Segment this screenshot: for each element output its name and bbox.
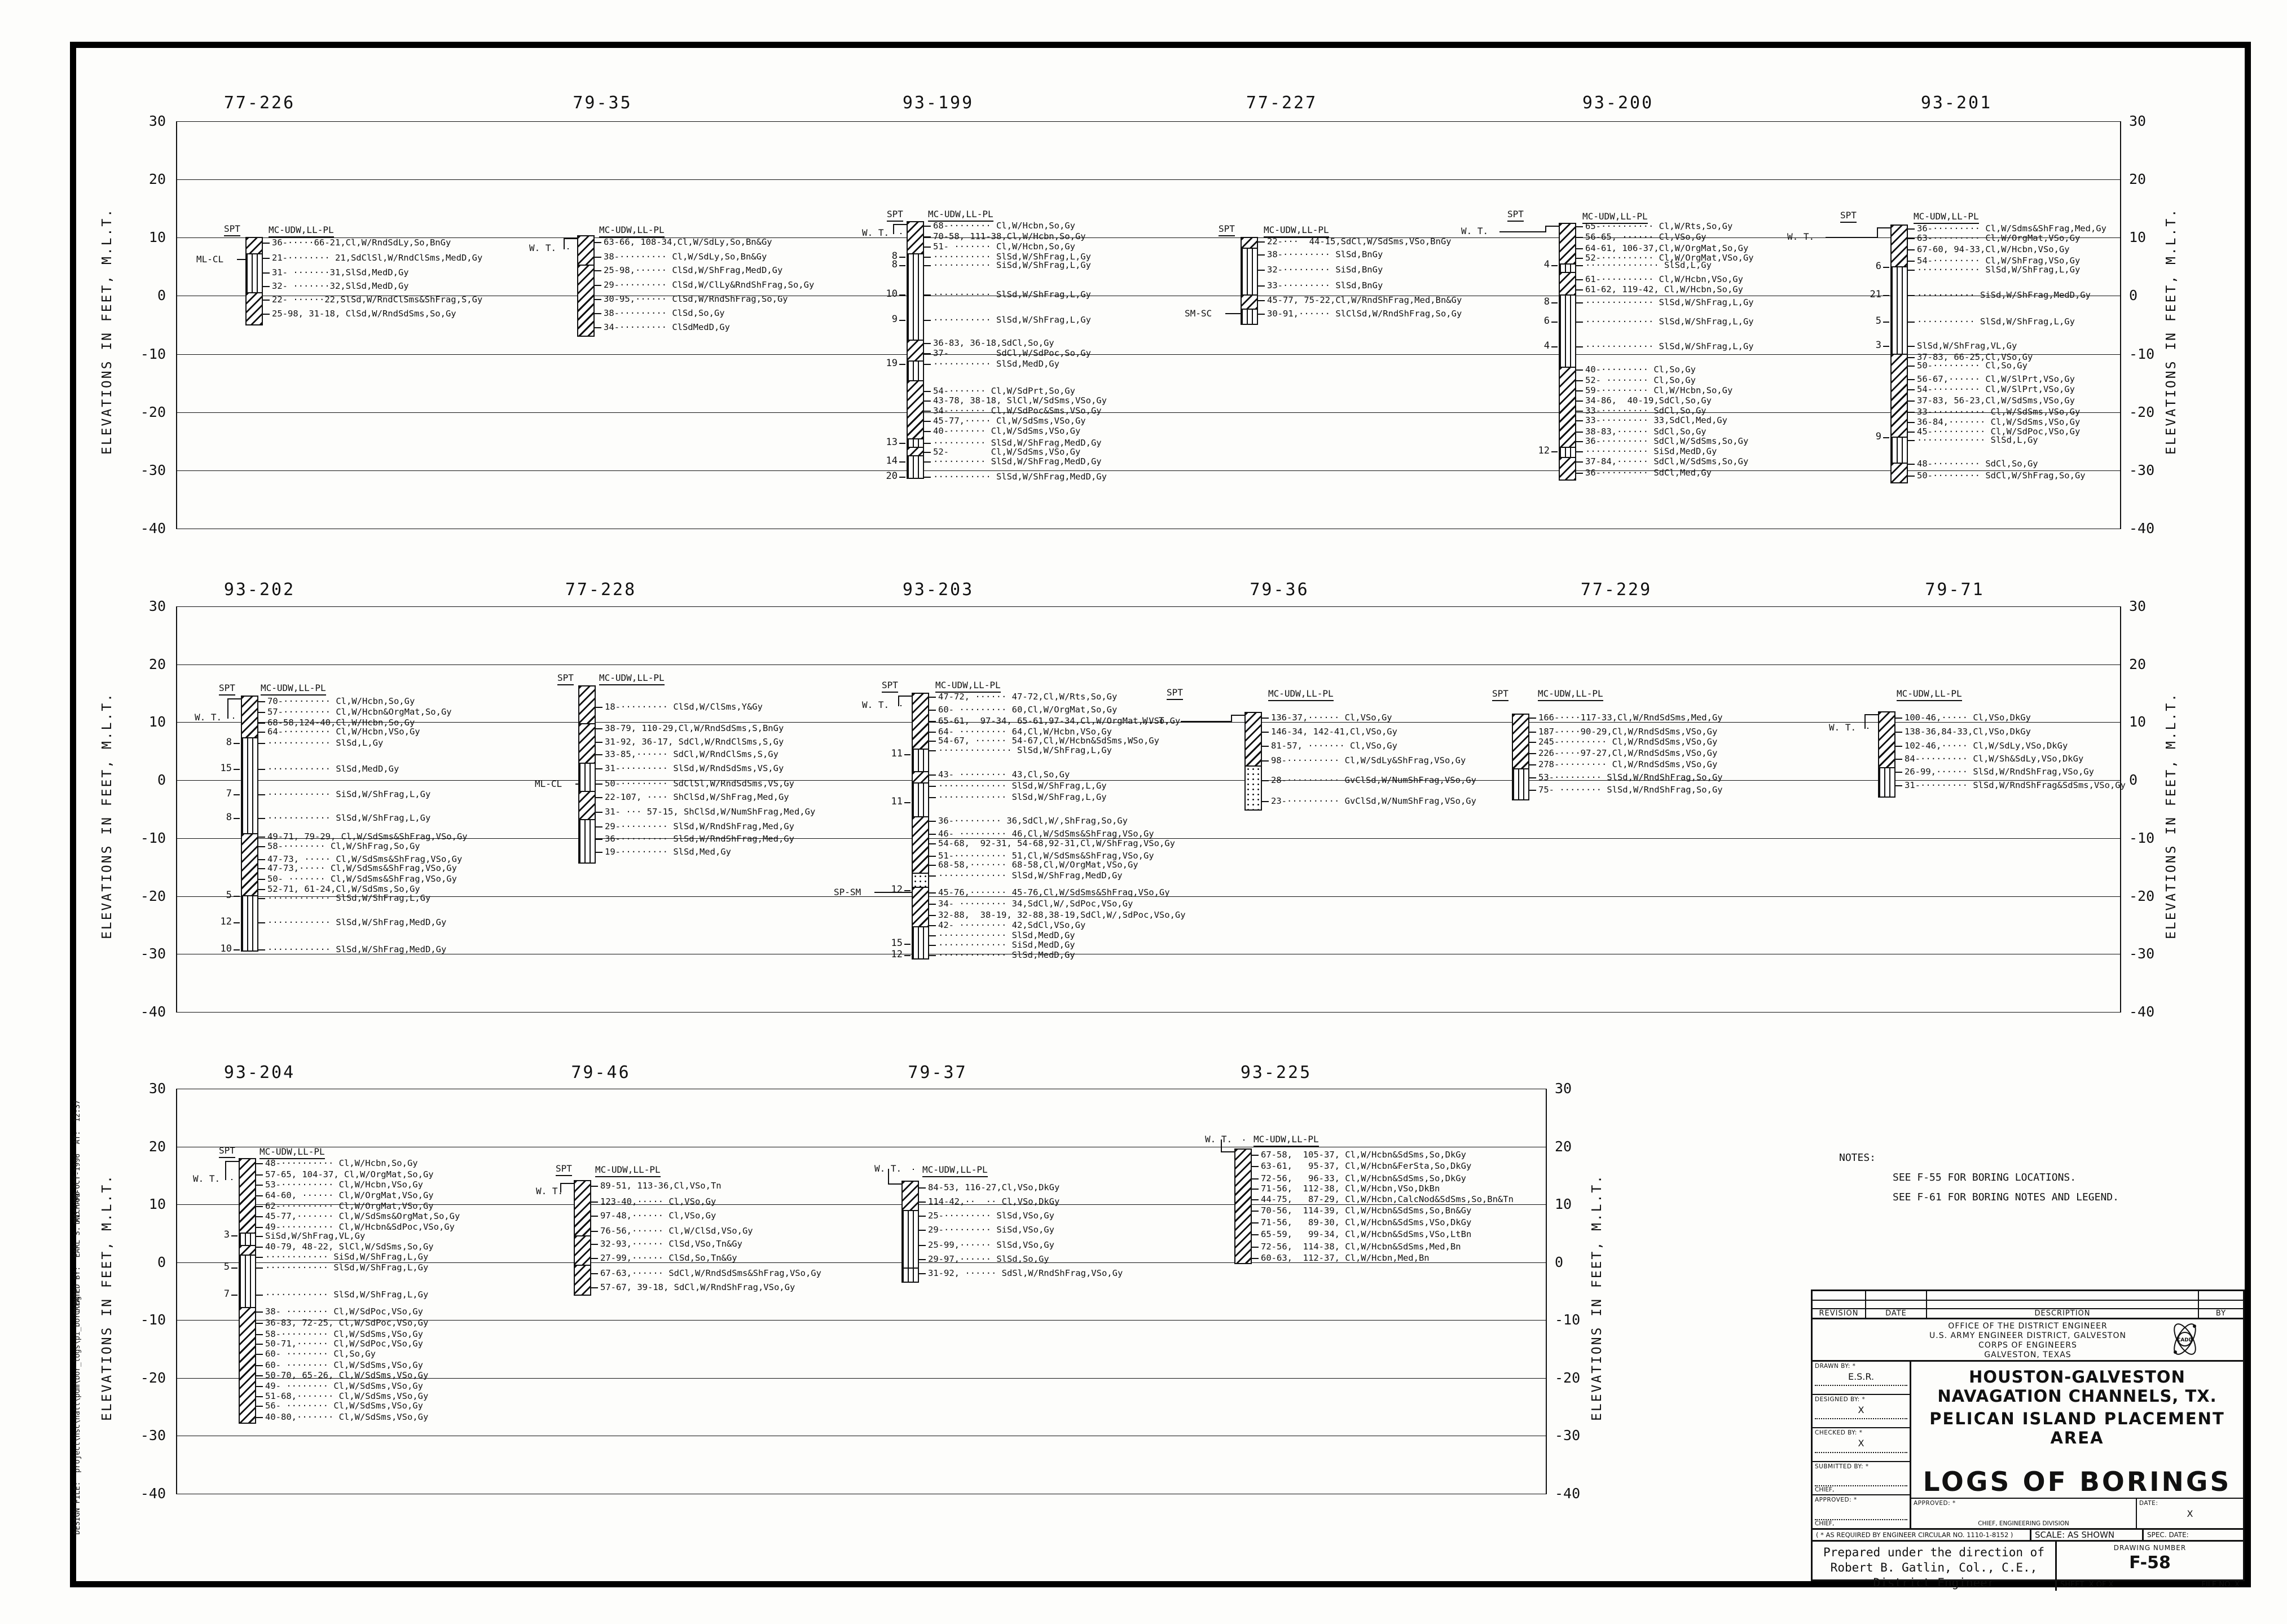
- tick-label: 30: [132, 113, 166, 129]
- strip-segment: [247, 253, 262, 292]
- leader-tick: [258, 879, 265, 880]
- leader-tick: [256, 1417, 263, 1418]
- leader-tick: [929, 821, 936, 822]
- log-entry: 67-60, 94-33,Cl,W/Hcbn,VSo,Gy: [1917, 244, 2070, 254]
- leader-tick: [256, 1267, 263, 1269]
- wt-line: [560, 1183, 561, 1192]
- strip-segment: [908, 447, 923, 455]
- boring-title: 93-201: [1894, 93, 2018, 113]
- wt-line: [231, 1179, 232, 1180]
- strip-segment: [579, 819, 595, 862]
- tick-label: 30: [132, 1080, 166, 1097]
- tick-label: 10: [132, 1196, 166, 1212]
- strip-segment: [913, 771, 928, 782]
- log-entry: 28-·········· GvClSd,W/NumShFrag,VSo,Gy: [1271, 775, 1476, 785]
- leader-tick: [256, 1386, 263, 1387]
- wt-label: W. T.: [1787, 231, 1814, 242]
- spt-tick: [904, 802, 911, 803]
- leader-tick: [1252, 1199, 1259, 1200]
- leader-tick: [258, 922, 265, 923]
- boring-title: 77-226: [197, 93, 322, 113]
- tick-label: 30: [2129, 598, 2169, 614]
- leader-tick: [1576, 248, 1583, 249]
- log-entry: 226-····97-27,Cl,W/RndSdSms,VSo,Gy: [1538, 748, 1717, 758]
- class-label: ML-CL: [535, 778, 562, 789]
- leader-tick: [1895, 772, 1902, 773]
- mc-header: MC-UDW,LL-PL: [928, 209, 993, 222]
- strip-segment: [247, 238, 262, 253]
- tick-label: -30: [132, 945, 166, 962]
- log-entry: 36-········· SlSd,W/RndShFrag,Med,Gy: [605, 834, 794, 844]
- log-entry: 64-61, 106-37,Cl,W/OrgMat,So,Gy: [1585, 243, 1748, 253]
- leader-tick: [1258, 300, 1265, 301]
- tick-label: 10: [2129, 229, 2169, 245]
- leader-tick: [1908, 432, 1915, 433]
- log-entry: 18-········· ClSd,W/ClSms,Y&Gy: [605, 702, 763, 712]
- spt-tick: [1883, 322, 1889, 323]
- log-entry: ·········· SlSd,W/ShFrag,MedD,Gy: [933, 456, 1102, 466]
- grid-line: [176, 664, 2120, 665]
- leader-tick: [595, 270, 601, 271]
- tick-label: 20: [2129, 656, 2169, 672]
- spt-tick: [904, 754, 911, 755]
- tick-label: -40: [2129, 520, 2169, 536]
- panel-edge: [176, 606, 177, 1012]
- tick-label: 0: [132, 1254, 166, 1270]
- strip-segment: [908, 438, 923, 447]
- leader-tick: [1529, 742, 1536, 743]
- log-entry: 44-75, 87-29, Cl,W/Hcbn,CalcNod&SdSms,So…: [1261, 1194, 1514, 1204]
- log-entry: 34- ········· 34,SdCl,W/,SdPoc,VSo,Gy: [938, 899, 1133, 909]
- leader-tick: [919, 1273, 926, 1274]
- log-entry: 50-········· SdClSl,W/RndSdSms,VS,Gy: [605, 778, 794, 789]
- log-entry: 38-········· SlSd,BnGy: [1267, 249, 1383, 259]
- leader-tick: [258, 898, 265, 899]
- tick-label: -40: [132, 1004, 166, 1020]
- log-entry: ············ SlSd,W/ShFrag,MedD,Gy: [267, 917, 446, 927]
- strip-segment: [1892, 266, 1907, 354]
- leader-tick: [1895, 718, 1902, 719]
- leader-tick: [1908, 389, 1915, 390]
- log-entry: 84-········· Cl,W/Sh&SdLy,VSo,DkGy: [1905, 754, 2083, 764]
- log-entry: 40-80,······· Cl,W/SdSms,VSo,Gy: [265, 1412, 428, 1422]
- spt-header: SPT: [224, 223, 240, 236]
- log-entry: 60- ········· 60,Cl,W/OrgMat,So,Gy: [938, 705, 1117, 715]
- leader-tick: [258, 794, 265, 795]
- strip-segment: [575, 1235, 590, 1265]
- tick-label: 0: [2129, 772, 2169, 788]
- log-strip: [1890, 225, 1908, 483]
- leader-tick: [258, 743, 265, 744]
- mc-header: MC-UDW,LL-PL: [1268, 688, 1334, 701]
- spt-tick: [1551, 265, 1558, 266]
- leader-tick: [263, 243, 270, 244]
- spt-tick: [234, 896, 240, 897]
- log-entry: ··········· SlSd,W/ShFrag,L,Gy: [933, 289, 1091, 300]
- log-entry: ············· SlSd,MedD,Gy: [938, 930, 1075, 940]
- leader-tick: [929, 945, 936, 946]
- log-entry: 62-·········· Cl,W/OrgMat,VSo,Gy: [265, 1201, 434, 1211]
- strip-segment: [913, 873, 928, 887]
- strip-segment: [578, 236, 593, 265]
- tick-label: 0: [2129, 287, 2169, 303]
- spt-tick: [234, 769, 240, 770]
- spt-header: SPT: [1219, 223, 1235, 236]
- wt-line: [227, 698, 228, 719]
- mc-header: MC-UDW,LL-PL: [1254, 1134, 1319, 1147]
- leader-tick: [258, 701, 265, 702]
- leader-tick: [256, 1174, 263, 1176]
- leader-tick: [591, 1231, 598, 1232]
- tick-label: -20: [132, 888, 166, 904]
- strip-segment: [913, 926, 928, 958]
- log-entry: 50-········· Cl,So,Gy: [1917, 360, 2027, 371]
- log-entry: ·············· SlSd,L,Gy: [1585, 260, 1712, 270]
- log-entry: ············ SlSd,W/ShFrag,L,Gy: [265, 1262, 428, 1273]
- log-entry: ············ SlSd,L,Gy: [267, 738, 383, 748]
- strip-segment: [908, 455, 923, 478]
- wt-line: [227, 698, 241, 699]
- strip-segment: [1560, 447, 1575, 457]
- log-entry: 67-63,······ SdCl,W/RndSdSms&ShFrag,VSo,…: [600, 1268, 821, 1278]
- panel-edge: [2120, 606, 2121, 1013]
- log-entry: 278-········· Cl,W/RndSdSms,VSo,Gy: [1538, 759, 1717, 769]
- log-entry: 98-·········· Cl,W/SdLy&ShFrag,VSo,Gy: [1271, 755, 1466, 765]
- leader-tick: [263, 300, 270, 301]
- spt-tick: [231, 1235, 238, 1236]
- log-entry: 75- ········ SlSd,W/RndShFrag,So,Gy: [1538, 785, 1723, 795]
- boring-title: 79-71: [1893, 580, 2017, 600]
- leader-tick: [595, 299, 601, 300]
- boring-title: 79-37: [876, 1063, 1000, 1082]
- log-entry: ············ SiSd,W/ShFrag,L,Gy: [267, 789, 430, 799]
- spt-tick: [234, 794, 240, 795]
- log-entry: 29-········· SlSd,W/RndShFrag,Med,Gy: [605, 821, 794, 831]
- leader-tick: [1252, 1247, 1259, 1248]
- spt-tick: [1551, 346, 1558, 347]
- log-entry: ··········· SlSd,W/ShFrag,L,Gy: [933, 315, 1091, 325]
- log-entry: 29-········· ClSd,W/ClLy&RndShFrag,So,Gy: [604, 280, 814, 290]
- log-entry: 47-73,····· Cl,W/SdSms&ShFrag,VSo,Gy: [267, 863, 457, 873]
- panel-edge: [2120, 121, 2121, 529]
- leader-tick: [595, 285, 601, 286]
- log-entry: 70-56, 114-39, Cl,W/Hcbn&SdSms,So,Bn&Gy: [1261, 1205, 1471, 1216]
- leader-tick: [1262, 801, 1269, 802]
- log-entry: 63-61, 95-37, Cl,W/Hcbn&FerSta,So,DkGy: [1261, 1161, 1471, 1171]
- strip-segment: [242, 833, 257, 895]
- log-strip: [239, 1158, 256, 1424]
- log-entry: ············· SlSd,L,Gy: [1917, 435, 2038, 445]
- leader-tick: [1908, 322, 1915, 323]
- leader-tick: [1908, 295, 1915, 296]
- log-entry: ············· SlSd,W/ShFrag,MedD,Gy: [938, 870, 1123, 881]
- tick-label: -40: [132, 520, 166, 536]
- leader-tick: [924, 265, 931, 266]
- leader-tick: [919, 1245, 926, 1246]
- strip-segment: [242, 895, 257, 950]
- tick-label: -20: [2129, 888, 2169, 904]
- spt-tick: [899, 257, 905, 258]
- spt-tick: [1551, 451, 1558, 452]
- log-entry: 146-34, 142-41,Cl,VSo,Gy: [1271, 727, 1397, 737]
- tick-label: -10: [2129, 830, 2169, 846]
- log-entry: 37-83, 56-23,Cl,W/SdSms,VSo,Gy: [1917, 395, 2075, 406]
- log-entry: 57-········· Cl,W/Hcbn&OrgMat,So,Gy: [267, 707, 452, 717]
- leader-tick: [1908, 228, 1915, 230]
- log-entry: 34-86, 40-19,SdCl,So,Gy: [1585, 395, 1712, 406]
- spt-value: 10: [873, 288, 898, 300]
- spt-tick: [234, 743, 240, 744]
- strip-segment: [579, 763, 595, 791]
- leader-tick: [924, 443, 931, 444]
- log-entry: 58-········· Cl,W/SdSms,VSo,Gy: [265, 1329, 423, 1339]
- spt-header: SPT: [882, 680, 898, 693]
- wt-line: [1181, 721, 1231, 722]
- leader-tick: [1258, 314, 1265, 315]
- log-entry: 68-········ Cl,W/Hcbn,So,Gy: [933, 221, 1075, 231]
- tick-label: 10: [132, 229, 166, 245]
- log-entry: 21-········ 21,SdClSl,W/RndClSms,MedD,Gy: [272, 253, 482, 263]
- log-entry: 72-56, 96-33, Cl,W/Hcbn&SdSms,So,DkGy: [1261, 1173, 1466, 1183]
- leader-tick: [929, 797, 936, 798]
- log-strip: [1559, 223, 1576, 481]
- leader-tick: [596, 839, 602, 840]
- leader-tick: [929, 865, 936, 866]
- tick-label: -10: [132, 1311, 166, 1328]
- strip-segment: [240, 1233, 255, 1245]
- spt-value: 8: [207, 737, 232, 748]
- leader-tick: [1252, 1222, 1259, 1223]
- leader-tick: [1576, 346, 1583, 347]
- leader-tick: [256, 1323, 263, 1324]
- strip-segment: [1879, 712, 1894, 767]
- log-entry: 43- ········· 43,Cl,So,Gy: [938, 769, 1070, 780]
- log-strip: [1234, 1148, 1252, 1264]
- grid-line: [176, 529, 2120, 529]
- tick-label: 30: [2129, 113, 2169, 129]
- log-entry: 40-······· Cl,W/SdSms,VSo,Gy: [933, 426, 1080, 436]
- tick-label: -20: [1555, 1370, 1594, 1386]
- log-entry: 72-56, 114-38, Cl,W/Hcbn&SdSms,Med,Bn: [1261, 1242, 1461, 1252]
- axis-title: ELEVATIONS IN FEET, M.L.T.: [2164, 680, 2179, 939]
- log-entry: 52- Cl,W/SdSms,VSo,Gy: [933, 447, 1080, 457]
- spt-tick: [1883, 437, 1889, 438]
- spt-value: 20: [873, 470, 898, 482]
- mc-header: MC-UDW,LL-PL: [595, 1164, 661, 1177]
- leader-tick: [1258, 241, 1265, 243]
- grid-line: [176, 780, 2120, 781]
- boring-title: 77-229: [1554, 580, 1678, 600]
- leader-tick: [929, 856, 936, 857]
- strip-segment: [240, 1307, 255, 1423]
- spt-value: 15: [207, 763, 232, 774]
- strip-segment: [903, 1210, 918, 1267]
- leader-tick: [1576, 226, 1583, 227]
- wt-line: [1864, 714, 1878, 715]
- leader-tick: [929, 915, 936, 916]
- wt-line: [1867, 728, 1868, 729]
- log-entry: 32-93,······ ClSd,VSo,Tn&Gy: [600, 1239, 742, 1249]
- log-entry: 34-······· Cl,W/SdPoc&Sms,VSo,Gy: [933, 406, 1102, 416]
- leader-tick: [929, 786, 936, 787]
- strip-segment: [575, 1181, 590, 1235]
- wt-line: [898, 696, 899, 706]
- log-entry: 63-········· Cl,W/OrgMat,VSo,Gy: [1917, 233, 2080, 243]
- spt-tick: [231, 1267, 238, 1269]
- leader-tick: [924, 236, 931, 237]
- panel-edge: [1546, 1089, 1547, 1494]
- leader-tick: [924, 391, 931, 392]
- log-entry: 50- ······· Cl,W/SdSms&ShFrag,VSo,Gy: [267, 874, 457, 884]
- leader-tick: [1262, 760, 1269, 762]
- log-entry: 70-58, 111-38,Cl,W/Hcbn,So,Gy: [933, 231, 1086, 241]
- log-entry: 38-········· ClSd,So,Gy: [604, 308, 725, 318]
- strip-segment: [242, 697, 257, 737]
- log-entry: 32-88, 38-19, 32-88,38-19,SdCl,W/,SdPoc,…: [938, 910, 1186, 920]
- leader-tick: [1529, 732, 1536, 733]
- log-entry: 81-57, ······· Cl,VSo,Gy: [1271, 741, 1397, 751]
- log-entry: 89-51, 113-36,Cl,VSo,Tn: [600, 1181, 722, 1191]
- tick-label: -20: [132, 1370, 166, 1386]
- log-entry: 27-99,······ ClSd,So,Tn&Gy: [600, 1253, 737, 1263]
- log-entry: 31-········· SlSd,W/RndSdSms,VS,Gy: [605, 763, 784, 773]
- boring-title: 79-35: [540, 93, 665, 113]
- log-strip: [912, 693, 929, 960]
- spt-value: 15: [878, 938, 903, 949]
- log-entry: 22- ······22,SlSd,W/RndClSms&ShFrag,S,Gy: [272, 294, 482, 305]
- leader-tick: [924, 421, 931, 422]
- wt-line: [898, 696, 912, 697]
- spt-value: 5: [1857, 315, 1881, 327]
- leader-tick: [1258, 270, 1265, 271]
- tick-label: -10: [132, 346, 166, 362]
- leader-tick: [1576, 420, 1583, 421]
- wt-label: W. T.: [193, 1173, 220, 1184]
- axis-title: ELEVATIONS IN FEET, M.L.T.: [2164, 195, 2179, 455]
- tick-label: 10: [1555, 1196, 1594, 1212]
- strip-segment: [908, 253, 923, 340]
- log-entry: 29-97,······ SlSd,So,Gy: [928, 1254, 1049, 1264]
- tick-label: 0: [132, 287, 166, 303]
- log-entry: 60- ········ Cl,W/SdSms,VSo,Gy: [265, 1360, 423, 1370]
- leader-tick: [1258, 254, 1265, 256]
- strip-segment: [1892, 437, 1907, 463]
- margin-note: AT: 12:37: [73, 1100, 82, 1144]
- boring-title: 77-227: [1220, 93, 1344, 113]
- leader-tick: [595, 242, 601, 243]
- log-entry: 31-92, 36-17, SdCl,W/RndClSms,S,Gy: [605, 737, 784, 747]
- log-entry: 97-48,······ Cl,VSo,Gy: [600, 1211, 716, 1221]
- leader-tick: [1576, 322, 1583, 323]
- strip-segment: [1879, 767, 1894, 796]
- log-entry: 61-62, 119-42, Cl,W/Hcbn,So,Gy: [1585, 284, 1743, 294]
- log-entry: 50-········· SdCl,W/ShFrag,So,Gy: [1917, 470, 2086, 481]
- strip-segment: [1242, 294, 1257, 309]
- log-entry: ··········· SlSd,MedD,Gy: [933, 359, 1059, 369]
- log-entry: 32-········· SiSd,BnGy: [1267, 265, 1383, 275]
- leader-tick: [929, 875, 936, 877]
- log-entry: ··········· SiSd,W/ShFrag,L,Gy: [933, 260, 1091, 270]
- log-entry: 47-72, ······ 47-72,Cl,W/Rts,So,Gy: [938, 692, 1117, 702]
- spt-value: 9: [873, 314, 898, 325]
- log-entry: 65-·········· Cl,W/Rts,So,Gy: [1585, 221, 1732, 231]
- log-strip: [901, 1181, 919, 1283]
- boring-title: 79-36: [1217, 580, 1342, 600]
- spt-tick: [1883, 267, 1889, 268]
- strip-segment: [1242, 238, 1257, 248]
- spt-value: 7: [205, 1288, 230, 1300]
- leader-tick: [1576, 390, 1583, 391]
- log-entry: 70-········· Cl,W/Hcbn,So,Gy: [267, 696, 415, 706]
- leader-tick: [929, 892, 936, 894]
- leader-tick: [263, 272, 270, 274]
- wt-line: [568, 248, 569, 249]
- log-entry: 23-·········· GvClSd,W/NumShFrag,VSo,Gy: [1271, 796, 1476, 806]
- log-entry: 56- ········ Cl,W/SdSms,VSo,Gy: [265, 1401, 423, 1411]
- log-entry: 49- ········ Cl,W/SdSms,VSo,Gy: [265, 1381, 423, 1391]
- leader-tick: [1576, 411, 1583, 412]
- wt-line: [893, 224, 907, 225]
- mc-header: MC-UDW,LL-PL: [935, 680, 1001, 693]
- leader-tick: [256, 1247, 263, 1248]
- tick-label: -10: [2129, 346, 2169, 362]
- leader-tick: [1252, 1234, 1259, 1235]
- tick-label: 20: [132, 171, 166, 187]
- log-entry: 40-········· Cl,So,Gy: [1585, 364, 1696, 375]
- log-entry: 57-65, 104-37, Cl,W/OrgMat,So,Gy: [265, 1169, 434, 1180]
- tick-label: 0: [1555, 1254, 1594, 1270]
- leader-tick: [1576, 401, 1583, 402]
- spt-value: 11: [878, 748, 903, 759]
- spt-tick: [899, 265, 905, 266]
- strip-segment: [913, 749, 928, 771]
- leader-tick: [596, 812, 602, 813]
- log-entry: 102-46,····· Cl,W/SdLy,VSo,DkGy: [1905, 741, 2068, 751]
- mc-header: MC-UDW,LL-PL: [1538, 688, 1603, 701]
- wt-line: [1826, 237, 1877, 238]
- log-entry: 45-76,······· 45-76,Cl,W/SdSms&ShFrag,VS…: [938, 887, 1170, 897]
- spt-value: 8: [207, 812, 232, 823]
- log-entry: 65-59, 99-34, Cl,W/Hcbn&SdSms,VSo,LtBn: [1261, 1229, 1471, 1239]
- wt-line: [225, 1161, 226, 1180]
- leader-tick: [924, 226, 931, 227]
- grid-line: [176, 1147, 1546, 1147]
- log-entry: 26-99,······ SlSd,W/RndShFrag,VSo,Gy: [1905, 767, 2094, 777]
- leader-tick: [1252, 1211, 1259, 1212]
- log-entry: SiSd,W/ShFrag,VL,Gy: [265, 1231, 365, 1241]
- log-entry: ············ SlSd,W/ShFrag,L,Gy: [1917, 265, 2080, 275]
- wt-line: [888, 1169, 889, 1185]
- strip-segment: [1513, 715, 1528, 768]
- strip-segment: [908, 222, 923, 253]
- spt-tick: [899, 477, 905, 478]
- log-entry: 50-70, 65-26, Cl,W/SdSms,VSo,Gy: [265, 1370, 428, 1380]
- tick-label: -40: [2129, 1004, 2169, 1020]
- boring-title: 93-200: [1556, 93, 1680, 113]
- tick-label: -30: [132, 462, 166, 478]
- leader-tick: [1908, 401, 1915, 402]
- class-label: ML-CL: [196, 254, 223, 265]
- mc-header: MC-UDW,LL-PL: [269, 225, 334, 237]
- spt-header: SPT: [1492, 688, 1508, 701]
- log-strip: [1512, 714, 1529, 800]
- leader-tick: [1908, 270, 1915, 271]
- leader-tick: [929, 843, 936, 844]
- leader-tick: [591, 1244, 598, 1245]
- wt-line: [1499, 231, 1545, 232]
- leader-tick: [258, 868, 265, 869]
- log-entry: 53-·········· Cl,W/Hcbn,VSo,Gy: [265, 1180, 423, 1190]
